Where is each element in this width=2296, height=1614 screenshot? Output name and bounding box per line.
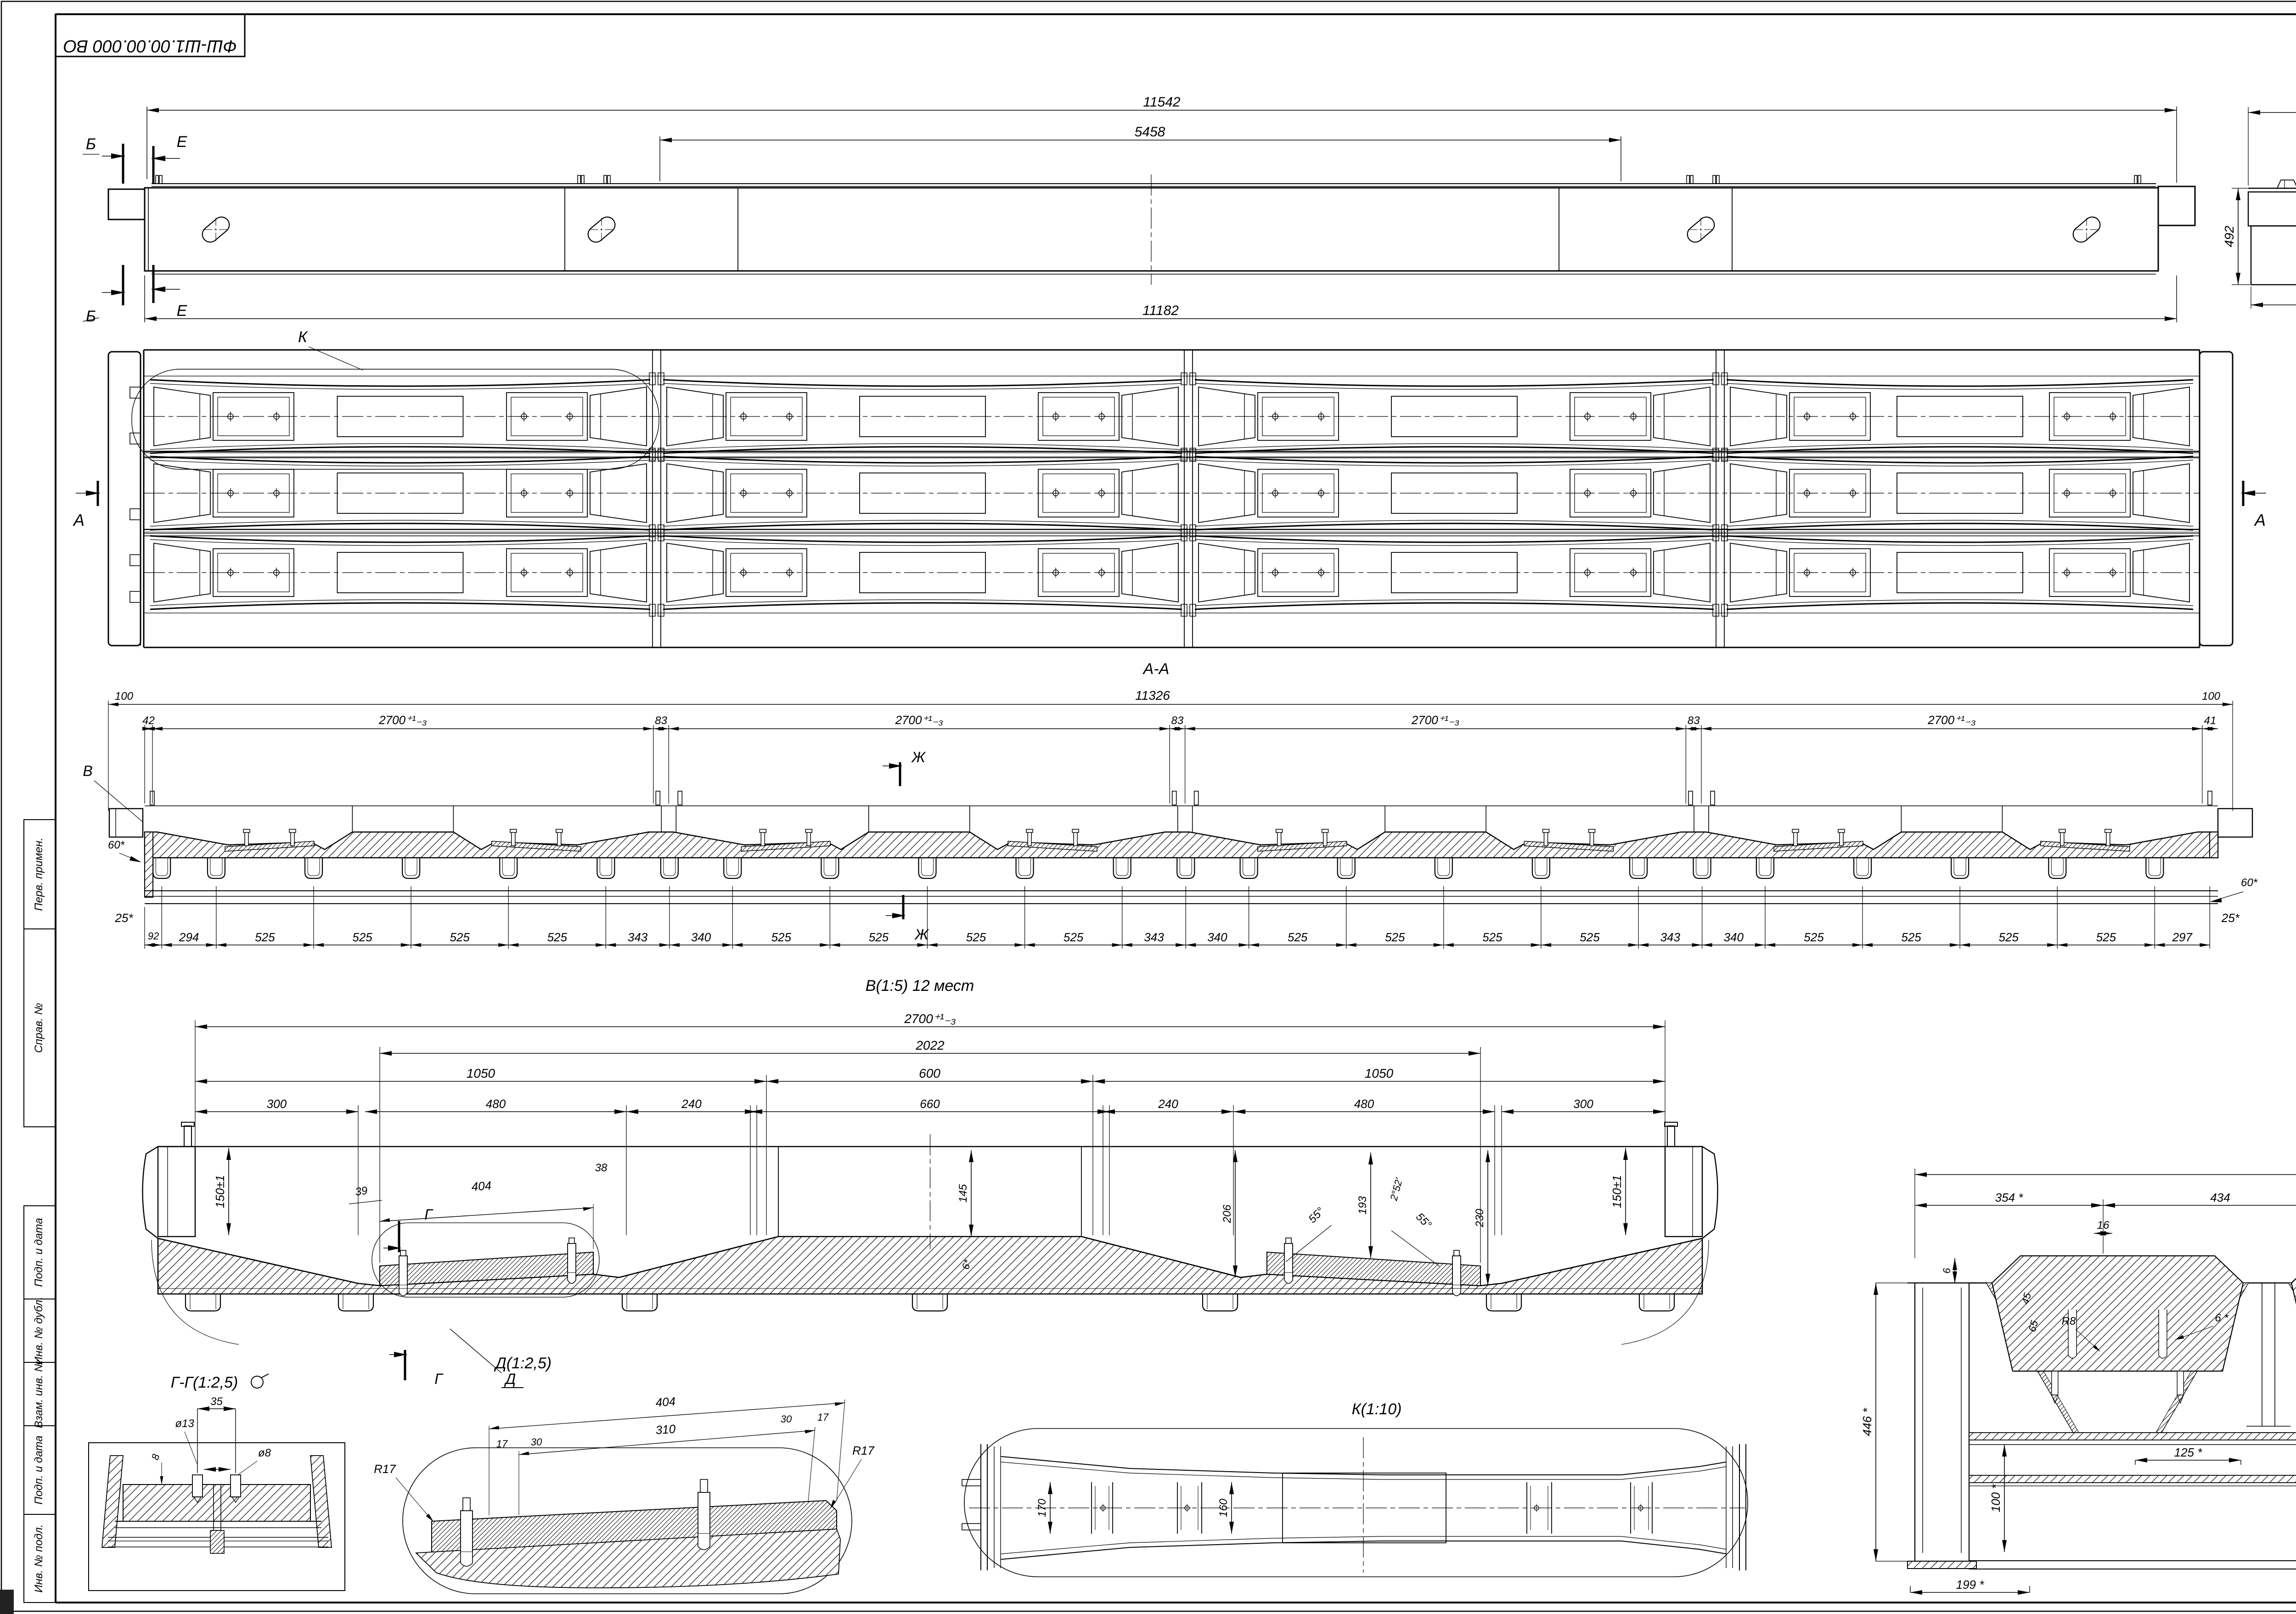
svg-text:297: 297 <box>2172 930 2193 944</box>
svg-text:ø8: ø8 <box>258 1447 271 1459</box>
svg-text:193: 193 <box>1356 1196 1369 1215</box>
svg-text:343: 343 <box>1660 930 1681 944</box>
svg-text:Инв. № подл.: Инв. № подл. <box>33 1524 45 1593</box>
svg-text:Подп. и дата: Подп. и дата <box>33 1218 45 1287</box>
svg-text:К(1:10): К(1:10) <box>1352 1400 1402 1418</box>
svg-text:354 *: 354 * <box>1995 1191 2024 1204</box>
svg-text:Г-Г(1:2,5): Г-Г(1:2,5) <box>171 1374 238 1391</box>
svg-text:60*: 60* <box>2241 877 2258 889</box>
svg-text:340: 340 <box>1207 930 1227 944</box>
svg-text:Г: Г <box>434 1371 444 1387</box>
svg-text:1050: 1050 <box>1365 1066 1394 1080</box>
svg-text:16: 16 <box>2097 1219 2110 1232</box>
svg-text:525: 525 <box>547 930 568 944</box>
svg-text:310: 310 <box>655 1422 676 1437</box>
svg-text:492: 492 <box>2222 225 2236 247</box>
svg-text:240: 240 <box>1158 1097 1178 1111</box>
svg-text:38: 38 <box>595 1162 608 1174</box>
svg-text:Инв. № дубл.: Инв. № дубл. <box>33 1297 45 1365</box>
svg-text:11326: 11326 <box>1135 688 1170 703</box>
svg-text:145: 145 <box>957 1184 969 1203</box>
svg-text:25*: 25* <box>2221 911 2240 925</box>
svg-text:404: 404 <box>471 1179 492 1194</box>
svg-text:Е: Е <box>177 133 187 151</box>
svg-text:Справ. №: Справ. № <box>33 1003 45 1053</box>
svg-text:2700⁺¹₋₃: 2700⁺¹₋₃ <box>1927 713 1975 727</box>
svg-text:Б: Б <box>86 135 96 153</box>
svg-text:Взам. инв. №: Взам. инв. № <box>33 1360 45 1428</box>
svg-text:199 *: 199 * <box>1956 1578 1985 1592</box>
svg-text:100: 100 <box>2202 690 2221 703</box>
svg-text:525: 525 <box>771 930 792 944</box>
svg-text:83: 83 <box>655 714 667 727</box>
svg-text:525: 525 <box>966 930 986 944</box>
svg-text:125 *: 125 * <box>2174 1445 2203 1459</box>
svg-text:300: 300 <box>267 1097 287 1111</box>
svg-text:ø13: ø13 <box>175 1417 194 1430</box>
svg-text:600: 600 <box>919 1066 940 1080</box>
svg-text:Д(1:2,5): Д(1:2,5) <box>494 1355 551 1372</box>
svg-text:25*: 25* <box>114 911 133 925</box>
svg-text:525: 525 <box>255 930 275 944</box>
svg-text:ФШ-Ш1.00.00.000 ВО: ФШ-Ш1.00.00.000 ВО <box>63 36 237 56</box>
svg-text:2700⁺¹₋₃: 2700⁺¹₋₃ <box>904 1012 956 1026</box>
svg-text:294: 294 <box>179 930 199 944</box>
svg-text:300: 300 <box>1573 1097 1593 1111</box>
svg-text:R17: R17 <box>374 1462 396 1476</box>
svg-text:6 *: 6 * <box>2215 1312 2228 1324</box>
svg-text:525: 525 <box>1385 930 1405 944</box>
svg-text:А-А: А-А <box>1142 660 1170 678</box>
svg-text:525: 525 <box>1999 930 2019 944</box>
svg-text:30: 30 <box>781 1413 792 1425</box>
svg-text:5458: 5458 <box>1135 124 1165 140</box>
svg-text:41: 41 <box>2204 714 2217 727</box>
svg-text:2700⁺¹₋₃: 2700⁺¹₋₃ <box>378 713 427 727</box>
svg-text:525: 525 <box>1804 930 1824 944</box>
svg-text:Б: Б <box>86 308 96 325</box>
svg-text:11542: 11542 <box>1143 95 1181 110</box>
svg-text:60*: 60* <box>108 839 125 851</box>
svg-text:17: 17 <box>496 1438 508 1450</box>
svg-text:39: 39 <box>355 1184 368 1198</box>
svg-text:150±1: 150±1 <box>213 1175 227 1208</box>
svg-text:Перв. примен.: Перв. примен. <box>33 838 45 911</box>
svg-text:404: 404 <box>655 1395 676 1410</box>
svg-text:340: 340 <box>691 930 711 944</box>
svg-text:11182: 11182 <box>1142 303 1179 318</box>
svg-text:30: 30 <box>531 1436 542 1448</box>
svg-text:100 *: 100 * <box>1989 1484 2003 1513</box>
svg-text:525: 525 <box>869 930 889 944</box>
svg-text:2700⁺¹₋₃: 2700⁺¹₋₃ <box>895 713 943 727</box>
svg-text:42: 42 <box>142 714 155 727</box>
svg-text:Подп. и дата: Подп. и дата <box>33 1435 45 1504</box>
svg-text:446 *: 446 * <box>1860 1408 1874 1436</box>
svg-text:660: 660 <box>920 1097 940 1111</box>
svg-text:R8: R8 <box>2062 1315 2076 1327</box>
svg-text:83: 83 <box>1688 714 1700 727</box>
svg-text:343: 343 <box>628 930 648 944</box>
svg-text:К: К <box>298 328 308 346</box>
svg-text:Ж: Ж <box>911 749 926 765</box>
svg-text:Е: Е <box>177 302 187 320</box>
svg-text:525: 525 <box>1064 930 1084 944</box>
svg-text:1050: 1050 <box>467 1066 495 1080</box>
svg-text:525: 525 <box>1288 930 1308 944</box>
svg-text:160: 160 <box>1217 1498 1230 1517</box>
svg-text:R17: R17 <box>852 1444 875 1457</box>
svg-text:525: 525 <box>1482 930 1503 944</box>
svg-text:В: В <box>83 763 92 779</box>
svg-text:480: 480 <box>486 1097 506 1111</box>
svg-text:100: 100 <box>115 690 134 703</box>
svg-text:434: 434 <box>2210 1191 2230 1204</box>
svg-text:525: 525 <box>352 930 372 944</box>
svg-text:6: 6 <box>1941 1268 1953 1274</box>
svg-text:525: 525 <box>450 930 470 944</box>
svg-text:343: 343 <box>1144 930 1164 944</box>
svg-text:525: 525 <box>2096 930 2116 944</box>
svg-text:Ж: Ж <box>914 926 929 943</box>
svg-text:2022: 2022 <box>915 1038 945 1052</box>
svg-text:83: 83 <box>1171 714 1184 727</box>
svg-text:230: 230 <box>1474 1209 1486 1228</box>
svg-text:2700⁺¹₋₃: 2700⁺¹₋₃ <box>1411 713 1459 727</box>
svg-text:92: 92 <box>148 930 159 942</box>
svg-text:17: 17 <box>817 1412 829 1423</box>
svg-text:240: 240 <box>681 1097 702 1111</box>
svg-text:525: 525 <box>1901 930 1921 944</box>
svg-text:А: А <box>73 511 84 529</box>
svg-text:340: 340 <box>1724 930 1744 944</box>
svg-text:Г: Г <box>424 1206 433 1223</box>
svg-text:206: 206 <box>1221 1204 1233 1224</box>
svg-text:525: 525 <box>1580 930 1600 944</box>
svg-text:Д: Д <box>504 1371 516 1387</box>
svg-text:150±1: 150±1 <box>1610 1175 1624 1208</box>
svg-text:480: 480 <box>1354 1097 1374 1111</box>
svg-text:А: А <box>2254 511 2266 529</box>
svg-text:В(1:5) 12 мест: В(1:5) 12 мест <box>866 977 974 995</box>
svg-text:35: 35 <box>210 1395 223 1408</box>
svg-text:170: 170 <box>1036 1498 1048 1517</box>
